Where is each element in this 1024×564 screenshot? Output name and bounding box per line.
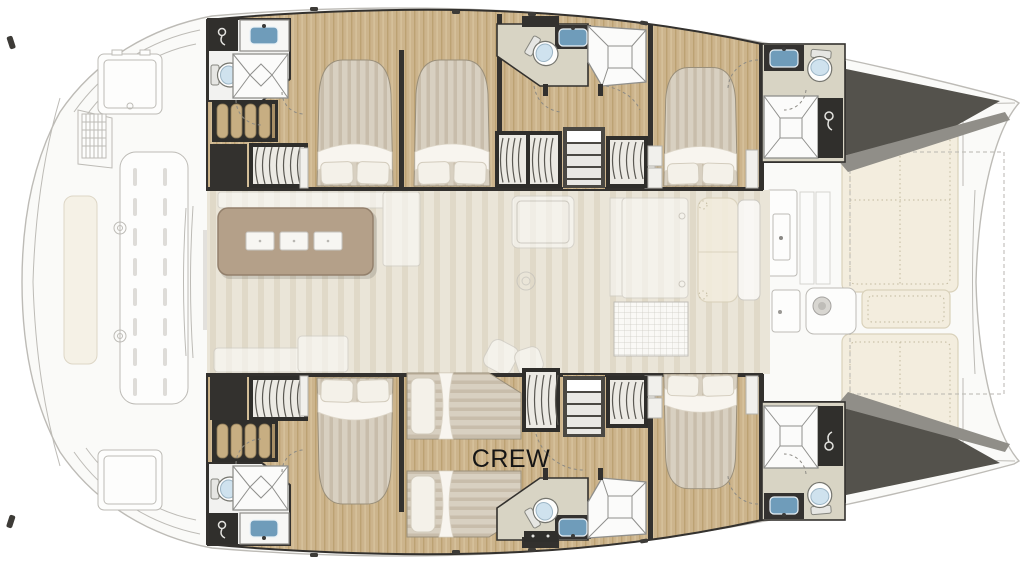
companionway-stairs bbox=[563, 127, 605, 188]
hanging-locker bbox=[606, 376, 648, 428]
saloon-sofa bbox=[698, 198, 738, 302]
shower-tray bbox=[233, 466, 288, 510]
crew-single-bed bbox=[407, 373, 521, 439]
cockpit-door bbox=[767, 190, 797, 276]
hanging-locker bbox=[249, 143, 308, 188]
cockpit-console bbox=[806, 288, 856, 334]
shower bbox=[588, 26, 646, 86]
sink bbox=[770, 497, 798, 514]
shower-cubicle bbox=[818, 406, 843, 466]
shower-cubicle bbox=[209, 20, 238, 51]
galley-island bbox=[218, 208, 377, 279]
wardrobe-louvered bbox=[212, 420, 278, 462]
bow-bench-cushion bbox=[64, 196, 97, 364]
double-bed bbox=[664, 374, 738, 489]
double-bed bbox=[414, 60, 490, 186]
cockpit-locker bbox=[772, 290, 800, 332]
sink bbox=[250, 27, 278, 44]
companionway-stairs bbox=[563, 376, 605, 437]
aft-bathroom bbox=[762, 402, 845, 520]
double-bed bbox=[317, 60, 393, 186]
forward-bathroom bbox=[208, 463, 290, 545]
saloon bbox=[207, 190, 770, 377]
sink bbox=[559, 29, 587, 46]
aft-bathroom bbox=[762, 44, 845, 162]
floorplan-canvas: CREW bbox=[0, 0, 1024, 564]
yacht-floorplan: CREW bbox=[0, 0, 1024, 564]
shower-cubicle bbox=[209, 513, 238, 544]
crew-cabin-label: CREW bbox=[472, 445, 550, 473]
shower-tray bbox=[233, 54, 288, 98]
shower bbox=[764, 406, 818, 468]
forward-bathroom bbox=[208, 19, 290, 101]
sink bbox=[770, 50, 798, 67]
double-bed bbox=[664, 68, 738, 186]
hanging-locker bbox=[495, 131, 562, 188]
hanging-locker bbox=[606, 136, 648, 188]
shower bbox=[764, 96, 818, 158]
bow-lounger bbox=[120, 152, 188, 404]
shower-cubicle bbox=[818, 98, 843, 158]
double-bed bbox=[317, 378, 393, 504]
galley-grid bbox=[614, 302, 688, 356]
hanging-locker bbox=[249, 376, 308, 421]
sink bbox=[250, 520, 278, 537]
hanging-locker bbox=[522, 368, 560, 432]
sink bbox=[559, 519, 587, 536]
shower bbox=[588, 478, 646, 538]
wardrobe-louvered bbox=[212, 100, 278, 142]
